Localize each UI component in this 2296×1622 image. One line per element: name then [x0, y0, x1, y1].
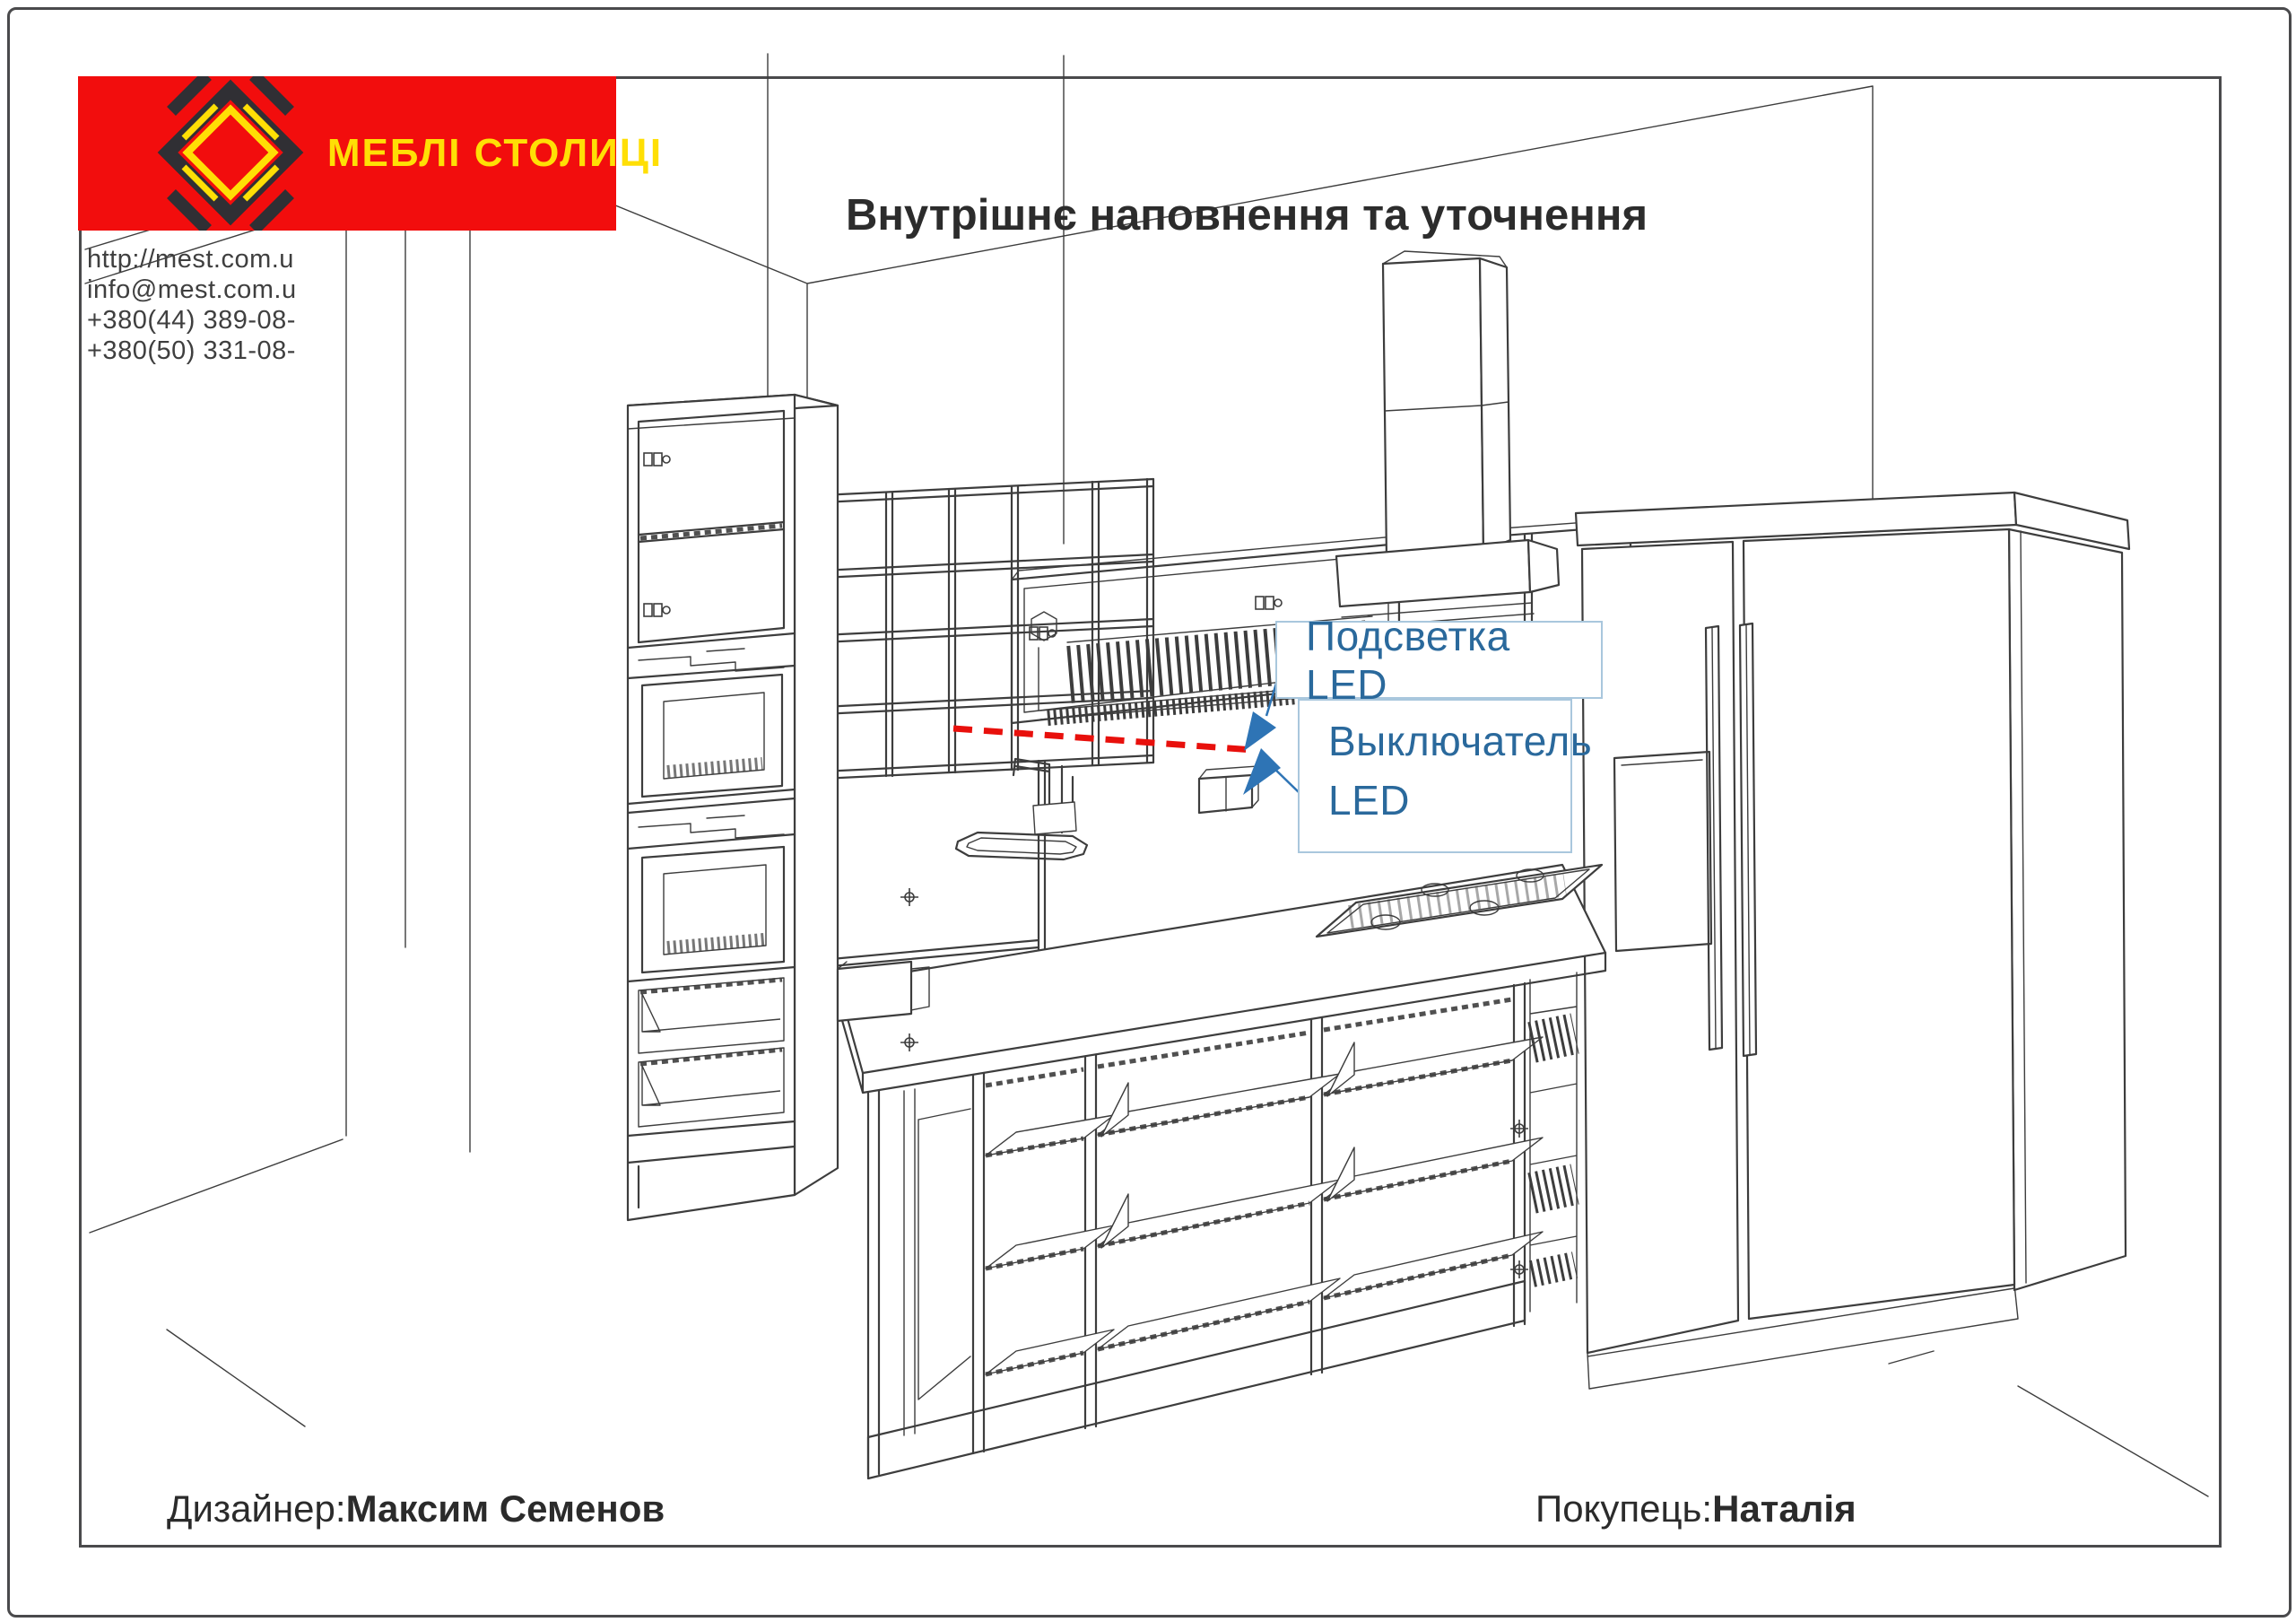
brand-logo-banner: МЕБЛІ СТОЛИЦІ — [78, 76, 616, 231]
refrigerator — [1576, 493, 2129, 1389]
contact-block: http://mest.com.u info@mest.com.u +380(4… — [87, 244, 297, 366]
designer-caption: Дизайнер:Максим Семенов — [167, 1487, 665, 1530]
tall-oven-cabinet — [628, 395, 929, 1220]
brand-name: МЕБЛІ СТОЛИЦІ — [307, 76, 683, 231]
contact-phone-1: +380(44) 389-08- — [87, 305, 297, 336]
callout-led-backlight: Подсветка LED — [1275, 621, 1603, 699]
leader-arrow-icon — [1244, 711, 1276, 751]
leader-arrow-icon — [1243, 748, 1281, 795]
page-title: Внутрішнє наповнення та уточнення — [843, 190, 1650, 240]
design-sheet: МЕБЛІ СТОЛИЦІ http://mest.com.u info@mes… — [0, 0, 2296, 1622]
contact-email: info@mest.com.u — [87, 275, 297, 305]
buyer-label: Покупець: — [1535, 1487, 1712, 1530]
callout-led-switch-line1: Выключатель — [1328, 711, 1570, 771]
cooker-hood — [1336, 251, 1559, 628]
buyer-caption: Покупець:Наталія — [1535, 1487, 1857, 1530]
kitchen-3d-wireframe — [0, 0, 2296, 1622]
designer-label: Дизайнер: — [167, 1487, 346, 1530]
callout-led-switch: Выключатель LED — [1298, 699, 1572, 853]
drawer-planes-d — [1324, 1037, 1543, 1298]
callout-led-switch-line2: LED — [1328, 771, 1570, 830]
callout-led-backlight-label: Подсветка LED — [1306, 612, 1601, 709]
contact-phone-2: +380(50) 331-08- — [87, 336, 297, 366]
led-strip-dashed-line — [953, 728, 1254, 750]
contact-website: http://mest.com.u — [87, 244, 297, 275]
buyer-name: Наталія — [1712, 1487, 1856, 1530]
designer-name: Максим Семенов — [346, 1487, 665, 1530]
drawer-planes-c — [1098, 1074, 1340, 1349]
drawer-planes-b — [986, 1115, 1114, 1374]
